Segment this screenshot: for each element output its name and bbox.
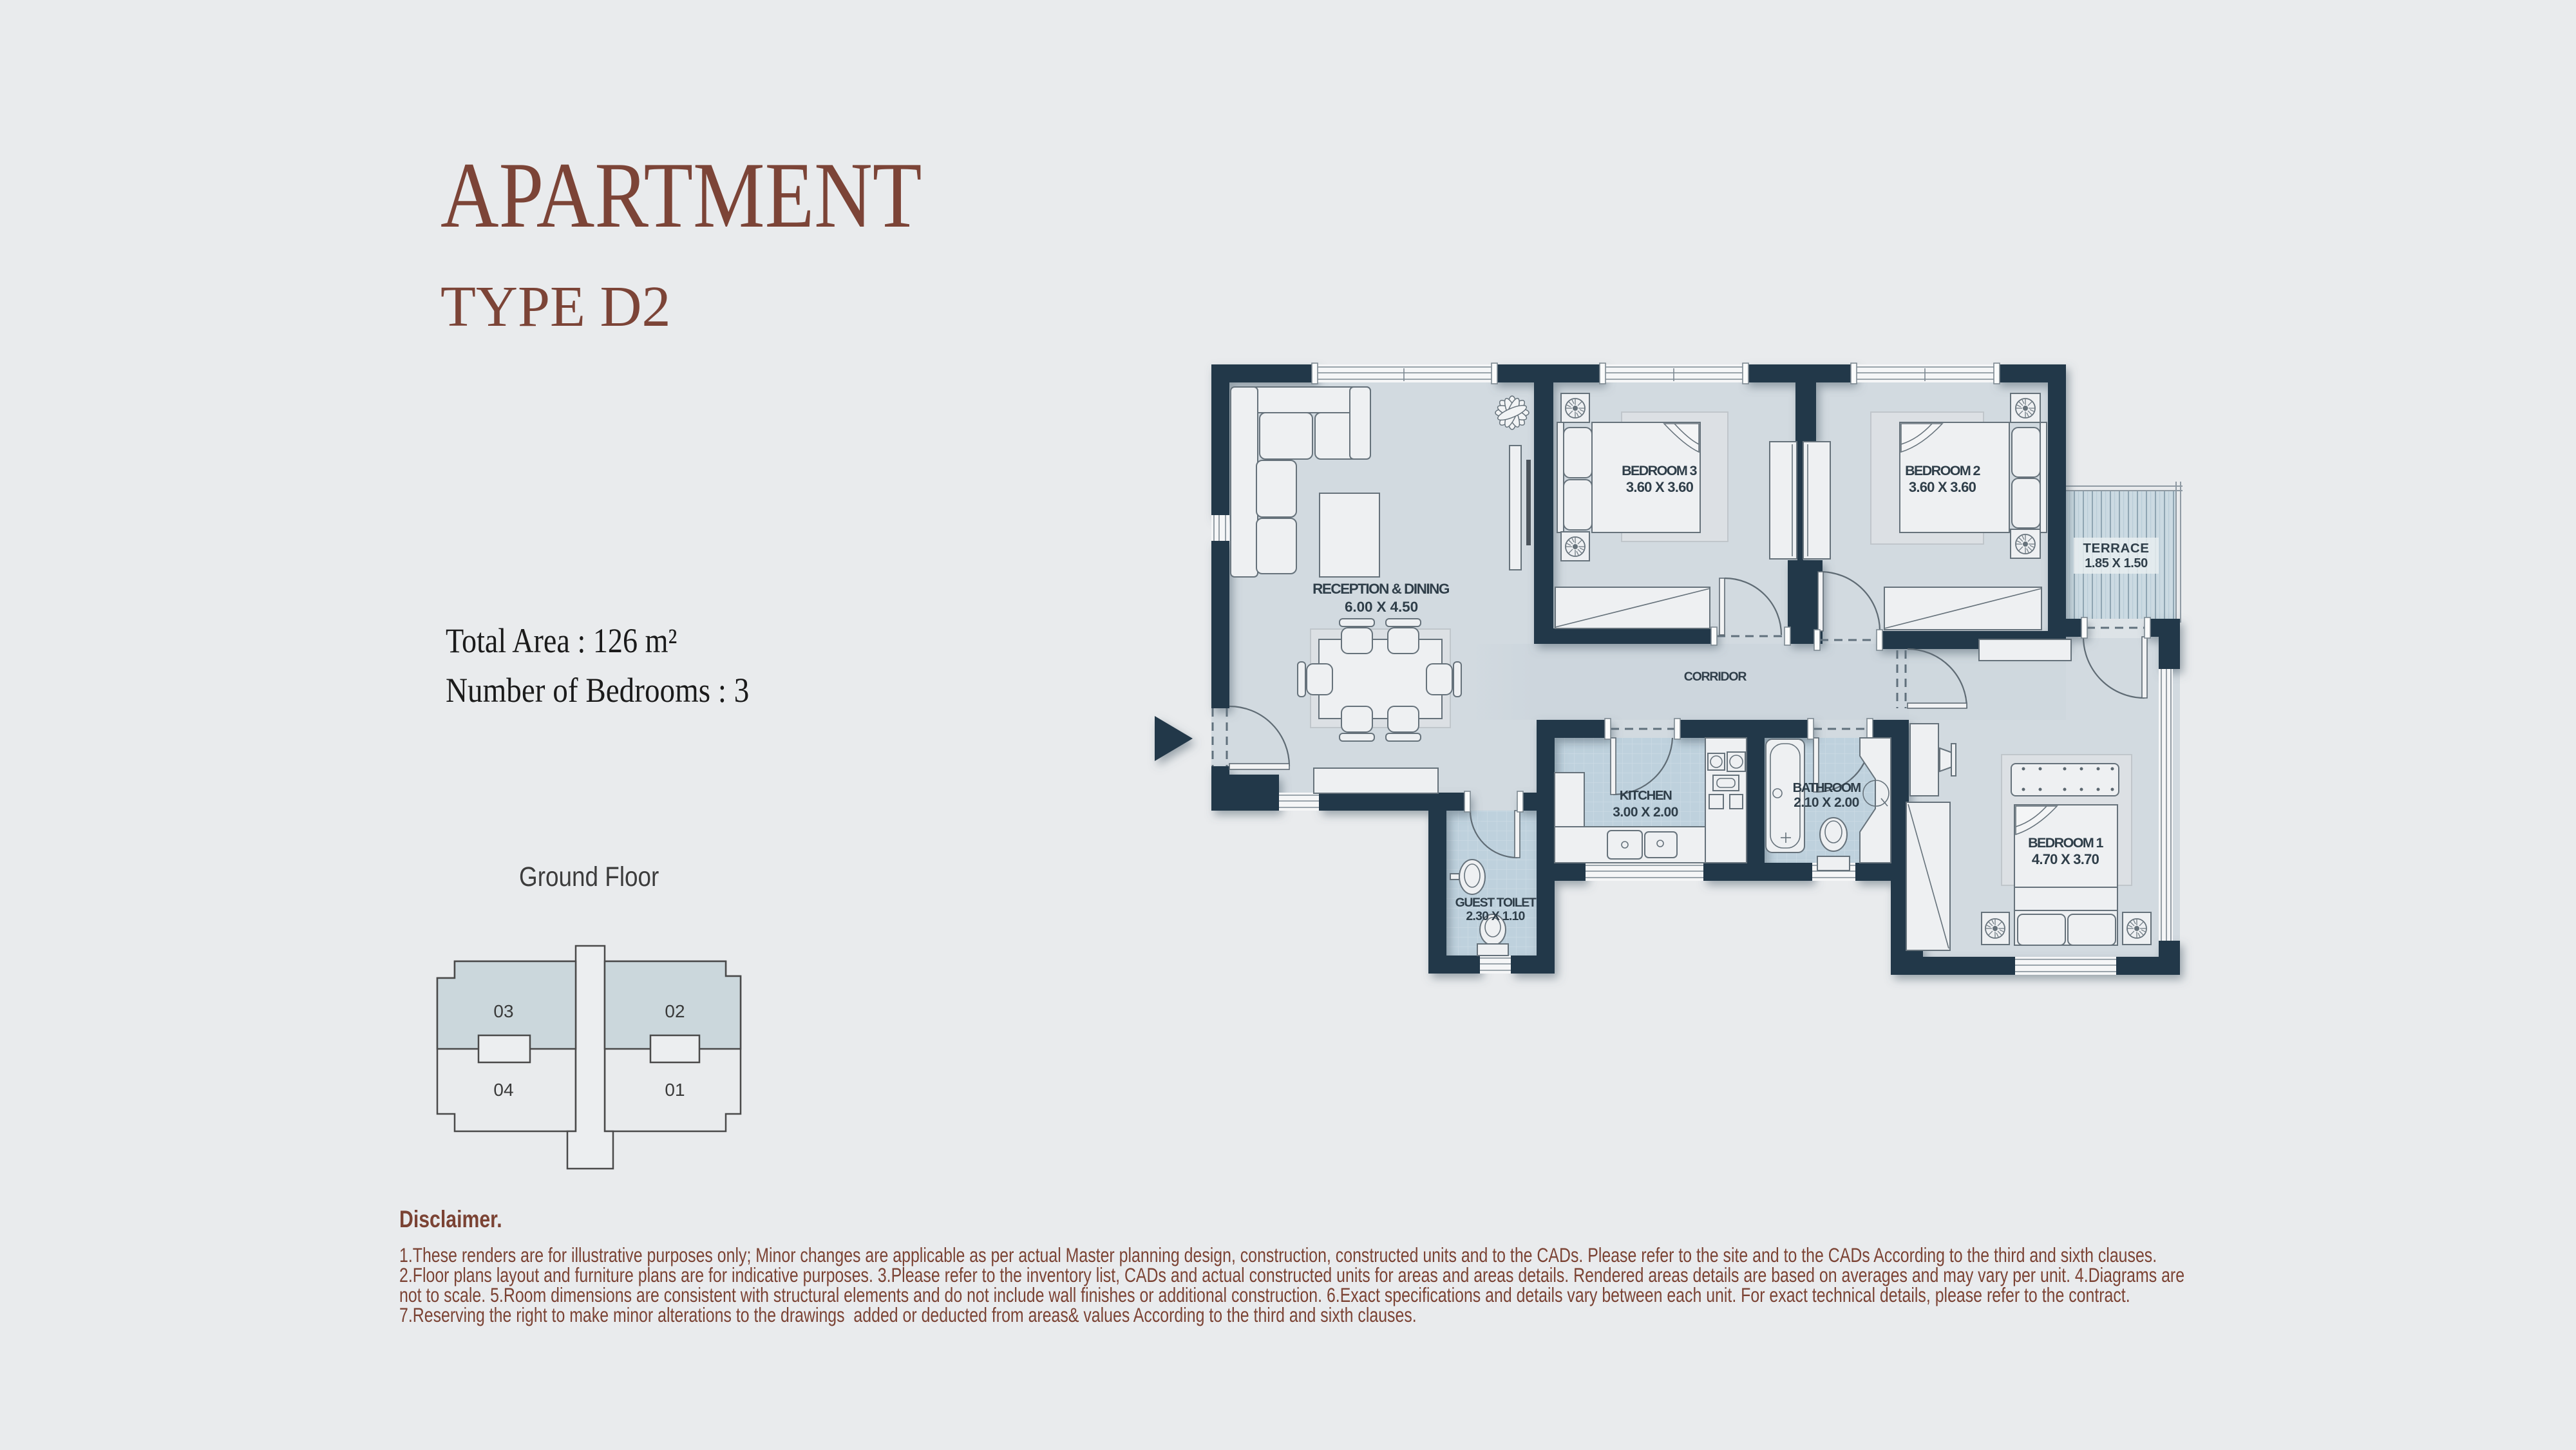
svg-text:3.00 X 2.00: 3.00 X 2.00 [1613, 805, 1678, 820]
svg-text:1.85 X 1.50: 1.85 X 1.50 [2085, 556, 2148, 570]
svg-text:3.60 X 3.60: 3.60 X 3.60 [1909, 479, 1976, 495]
svg-text:2.10 X 2.00: 2.10 X 2.00 [1794, 795, 1859, 810]
svg-text:CORRIDOR: CORRIDOR [1684, 670, 1747, 684]
svg-text:KITCHEN: KITCHEN [1620, 788, 1672, 803]
svg-text:BEDROOM 2: BEDROOM 2 [1905, 463, 1980, 478]
svg-text:3.60 X 3.60: 3.60 X 3.60 [1626, 479, 1694, 495]
svg-text:BEDROOM 1: BEDROOM 1 [2028, 835, 2103, 851]
svg-text:2.30 X 1.10: 2.30 X 1.10 [1466, 909, 1525, 923]
svg-text:4.70 X 3.70: 4.70 X 3.70 [2032, 851, 2099, 867]
svg-text:03: 03 [493, 1001, 513, 1021]
svg-text:01: 01 [665, 1080, 685, 1100]
svg-text:GUEST TOILET: GUEST TOILET [1455, 896, 1537, 910]
svg-text:TERRACE: TERRACE [2083, 541, 2150, 556]
svg-text:04: 04 [493, 1080, 513, 1100]
svg-text:6.00 X 4.50: 6.00 X 4.50 [1345, 599, 1418, 615]
svg-text:BEDROOM 3: BEDROOM 3 [1622, 463, 1697, 478]
svg-text:RECEPTION & DINING: RECEPTION & DINING [1312, 581, 1450, 597]
svg-text:02: 02 [665, 1001, 685, 1021]
svg-text:BATHROOM: BATHROOM [1793, 780, 1861, 795]
